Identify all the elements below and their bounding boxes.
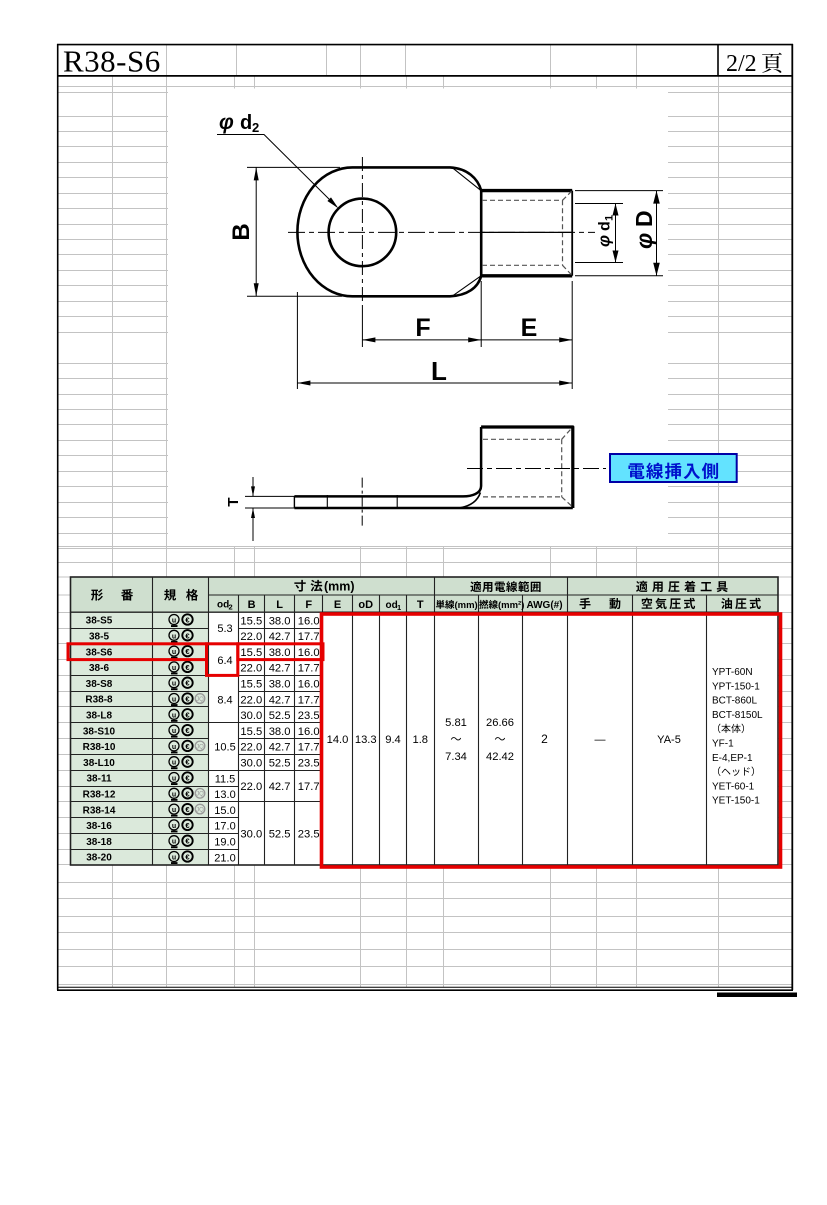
svg-text:JQ: JQ <box>196 808 204 814</box>
svg-text:JQ: JQ <box>196 697 204 703</box>
svg-text:E: E <box>521 314 538 342</box>
svg-text:17.7: 17.7 <box>298 694 320 706</box>
svg-text:2: 2 <box>229 603 233 612</box>
svg-text:15.0: 15.0 <box>214 805 235 817</box>
svg-text:42.7: 42.7 <box>269 781 291 793</box>
svg-text:9.4: 9.4 <box>385 734 401 746</box>
svg-text:R38-8: R38-8 <box>85 695 113 706</box>
svg-text:38-L10: 38-L10 <box>83 758 115 769</box>
svg-text:38-S5: 38-S5 <box>86 616 113 627</box>
svg-text:8.4: 8.4 <box>217 694 232 706</box>
svg-text:42.42: 42.42 <box>486 751 514 763</box>
svg-text:d: d <box>597 221 614 231</box>
svg-text:15.5: 15.5 <box>240 679 262 691</box>
svg-text:16.0: 16.0 <box>298 726 320 738</box>
svg-text:38-11: 38-11 <box>86 774 111 785</box>
svg-text:u: u <box>172 712 176 719</box>
svg-text:od: od <box>217 600 229 611</box>
svg-text:E-4,EP-1: E-4,EP-1 <box>712 753 753 764</box>
svg-text:u: u <box>172 823 176 830</box>
svg-text:5.81: 5.81 <box>445 717 467 729</box>
svg-text:2: 2 <box>541 732 548 746</box>
svg-text:38.0: 38.0 <box>269 726 291 738</box>
svg-text:AWG(#): AWG(#) <box>526 600 562 611</box>
svg-text:oD: oD <box>358 599 373 611</box>
svg-text:1: 1 <box>604 215 616 221</box>
svg-text:u: u <box>172 649 176 656</box>
svg-text:B: B <box>228 223 255 240</box>
svg-text:u: u <box>172 681 176 688</box>
svg-text:YPT-60N: YPT-60N <box>712 667 753 678</box>
svg-text:BCT-8150L: BCT-8150L <box>712 710 763 721</box>
svg-text:38-5: 38-5 <box>89 632 109 643</box>
svg-text:17.7: 17.7 <box>298 663 320 675</box>
svg-text:38-S6: 38-S6 <box>86 647 113 658</box>
svg-text:u: u <box>172 839 176 846</box>
svg-text:〜: 〜 <box>494 734 505 746</box>
svg-text:(mm): (mm) <box>455 600 478 611</box>
svg-text:L: L <box>431 356 447 386</box>
svg-text:u: u <box>172 791 176 798</box>
svg-text:od: od <box>386 600 398 611</box>
svg-text:38-16: 38-16 <box>86 821 112 832</box>
svg-text:YF-1: YF-1 <box>712 739 734 750</box>
svg-text:u: u <box>172 697 176 704</box>
svg-text:2: 2 <box>252 120 259 135</box>
svg-text:u: u <box>172 728 176 735</box>
svg-text:R38-10: R38-10 <box>83 742 116 753</box>
svg-text:2/2: 2/2 <box>726 51 757 77</box>
svg-text:38-20: 38-20 <box>86 853 112 864</box>
svg-text:23.5: 23.5 <box>298 829 320 841</box>
svg-text:38.0: 38.0 <box>269 647 291 659</box>
svg-text:1.8: 1.8 <box>412 734 428 746</box>
svg-text:38-S10: 38-S10 <box>83 726 116 737</box>
svg-text:T: T <box>225 497 242 506</box>
svg-text:u: u <box>172 760 176 767</box>
svg-text:52.5: 52.5 <box>269 710 291 722</box>
svg-text:22.0: 22.0 <box>240 694 262 706</box>
svg-text:YET-150-1: YET-150-1 <box>712 796 760 807</box>
svg-text:17.0: 17.0 <box>214 821 235 833</box>
svg-text:R38-12: R38-12 <box>83 790 116 801</box>
svg-text:15.5: 15.5 <box>240 647 262 659</box>
svg-text:YA-5: YA-5 <box>657 734 681 746</box>
svg-text:16.0: 16.0 <box>298 679 320 691</box>
svg-text:φ: φ <box>631 233 657 249</box>
svg-text:T: T <box>417 599 424 611</box>
svg-text:17.7: 17.7 <box>298 742 320 754</box>
svg-text:16.0: 16.0 <box>298 647 320 659</box>
svg-text:26.66: 26.66 <box>486 717 514 729</box>
svg-text:u: u <box>172 855 176 862</box>
svg-text:B: B <box>248 599 256 611</box>
svg-text:u: u <box>172 633 176 640</box>
svg-text:19.0: 19.0 <box>214 837 235 849</box>
svg-text:38-S8: 38-S8 <box>86 679 113 690</box>
svg-text:F: F <box>415 314 430 342</box>
svg-text:38-L8: 38-L8 <box>86 711 113 722</box>
svg-text:38.0: 38.0 <box>269 679 291 691</box>
svg-text:YPT-150-1: YPT-150-1 <box>712 681 760 692</box>
svg-text:13.0: 13.0 <box>214 789 235 801</box>
svg-text:7.34: 7.34 <box>445 751 467 763</box>
svg-text:JQ: JQ <box>196 744 204 750</box>
svg-text:u: u <box>172 807 176 814</box>
svg-text:17.7: 17.7 <box>298 631 320 643</box>
svg-text:38-6: 38-6 <box>89 663 109 674</box>
svg-text:42.7: 42.7 <box>269 663 291 675</box>
svg-text:15.5: 15.5 <box>240 615 262 627</box>
svg-text:11.5: 11.5 <box>215 773 236 785</box>
svg-text:30.0: 30.0 <box>240 829 262 841</box>
svg-text:φ: φ <box>595 235 614 247</box>
svg-text:D: D <box>631 210 657 227</box>
svg-text:u: u <box>172 776 176 783</box>
svg-text:23.5: 23.5 <box>298 710 320 722</box>
svg-text:u: u <box>172 744 176 751</box>
svg-text:30.0: 30.0 <box>240 710 262 722</box>
svg-text:E: E <box>334 599 341 611</box>
svg-text:u: u <box>172 665 176 672</box>
svg-text:42.7: 42.7 <box>269 742 291 754</box>
svg-text:17.7: 17.7 <box>298 781 320 793</box>
svg-text:YET-60-1: YET-60-1 <box>712 781 755 792</box>
svg-text:d: d <box>240 112 252 134</box>
svg-text:52.5: 52.5 <box>269 829 291 841</box>
svg-text:22.0: 22.0 <box>240 781 262 793</box>
svg-text:BCT-860L: BCT-860L <box>712 696 757 707</box>
svg-text:10.5: 10.5 <box>214 742 235 754</box>
svg-text:52.5: 52.5 <box>269 758 291 770</box>
svg-text:1: 1 <box>397 603 401 612</box>
svg-text:21.0: 21.0 <box>214 852 235 864</box>
svg-text:22.0: 22.0 <box>240 663 262 675</box>
svg-text:F: F <box>305 599 312 611</box>
svg-text:30.0: 30.0 <box>240 758 262 770</box>
svg-text:23.5: 23.5 <box>298 758 320 770</box>
svg-text:R38-14: R38-14 <box>83 805 116 816</box>
svg-text:6.4: 6.4 <box>217 655 232 667</box>
svg-text:—: — <box>595 734 606 746</box>
svg-text:φ: φ <box>219 111 234 134</box>
svg-text:22.0: 22.0 <box>240 631 262 643</box>
svg-text:5.3: 5.3 <box>217 623 232 635</box>
svg-text:42.7: 42.7 <box>269 694 291 706</box>
svg-text:〜: 〜 <box>450 734 461 746</box>
svg-text:u: u <box>172 618 176 625</box>
svg-text:13.3: 13.3 <box>355 734 377 746</box>
svg-text:L: L <box>276 599 283 611</box>
svg-text:(mm²): (mm²) <box>498 600 524 611</box>
svg-text:14.0: 14.0 <box>327 734 349 746</box>
svg-text:22.0: 22.0 <box>240 742 262 754</box>
svg-text:38-18: 38-18 <box>86 837 112 848</box>
svg-text:16.0: 16.0 <box>298 615 320 627</box>
svg-text:38.0: 38.0 <box>269 615 291 627</box>
svg-text:(mm): (mm) <box>324 580 355 594</box>
svg-text:42.7: 42.7 <box>269 631 291 643</box>
svg-text:JQ: JQ <box>196 792 204 798</box>
svg-text:R38-S6: R38-S6 <box>63 44 161 79</box>
svg-text:15.5: 15.5 <box>240 726 262 738</box>
